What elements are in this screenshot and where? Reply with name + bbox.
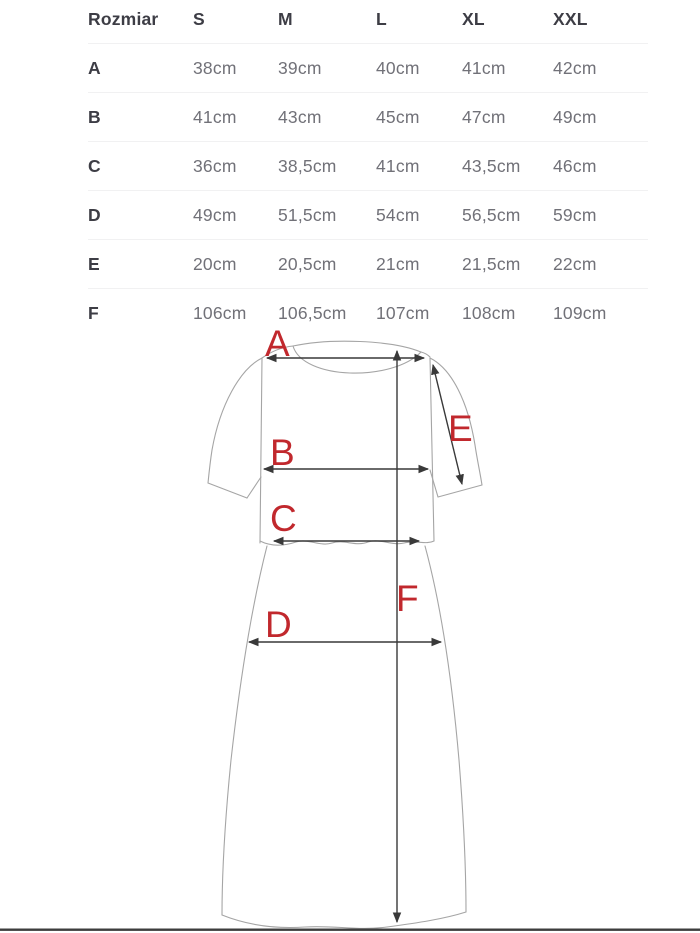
skirt-hem-wavy <box>222 912 466 928</box>
bottom-border-line <box>0 929 700 931</box>
right-shoulder-line <box>421 352 430 357</box>
skirt-left-side <box>222 546 267 915</box>
measure-label-c: C <box>270 498 297 539</box>
measure-label-a: A <box>265 323 290 364</box>
skirt-right-side <box>425 546 466 912</box>
size-guide-page: Rozmiar S M L XL XXL A 38cm 39cm 40cm 41… <box>0 0 700 933</box>
left-sleeve-inner <box>247 477 261 498</box>
dress-measurement-diagram: A B C D E F <box>0 0 700 933</box>
bodice-right-seam <box>430 358 434 541</box>
right-sleeve-cuff <box>438 485 482 497</box>
measurement-labels: A B C D E F <box>265 323 473 645</box>
bodice-left-seam <box>260 358 262 543</box>
right-sleeve-inner <box>430 470 438 497</box>
left-sleeve-outer <box>208 358 262 483</box>
measure-label-e: E <box>448 408 473 449</box>
measure-label-f: F <box>396 578 419 619</box>
back-neckline <box>293 341 421 352</box>
measure-label-b: B <box>270 432 295 473</box>
left-sleeve-cuff <box>208 483 247 498</box>
dress-outline <box>208 341 482 928</box>
measure-label-d: D <box>265 604 292 645</box>
front-neckline <box>293 346 421 373</box>
